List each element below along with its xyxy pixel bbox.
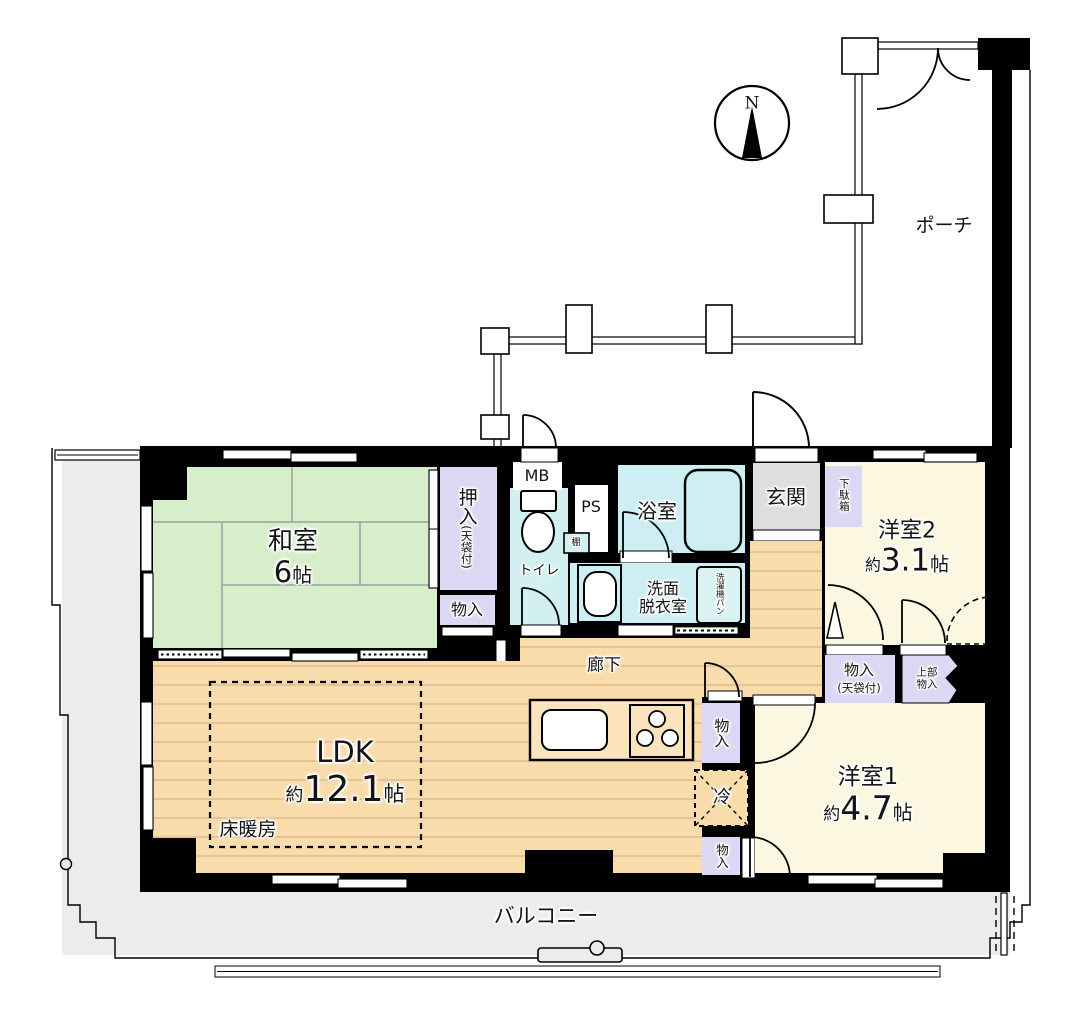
porch-wall: [978, 38, 1030, 70]
ldk-floor: [153, 661, 702, 873]
yoshitsu2-label: 洋室2: [878, 520, 936, 545]
balcony-label: バルコニー: [494, 905, 599, 929]
mb-door-opening: [521, 448, 558, 462]
yoshitsu1-side-opening: [742, 838, 755, 878]
oshiire-label: 押入(天袋付): [455, 487, 476, 568]
washroom-line1: 洗面: [647, 579, 679, 598]
rouka-label: 廊下: [587, 656, 621, 675]
laundry-line1: 洗濯機: [714, 573, 724, 599]
vanity-bowl: [584, 572, 616, 616]
mb-door: [523, 415, 556, 448]
floorplan-page: N ポーチ バルコニー 和室 6帖 LDK 約12.1帖 床暖房 洋室1 約4.…: [0, 0, 1072, 1024]
porch-door: [877, 48, 938, 109]
meter-box-label: MB: [525, 467, 550, 485]
washitsu-size: 6帖: [274, 556, 312, 588]
monoire-hall-text: 物入: [844, 661, 874, 679]
compass-north-label: N: [745, 94, 760, 113]
balcony-hatch: [538, 948, 622, 962]
ldk-approx: 約: [285, 785, 303, 806]
bath-door-opening: [620, 551, 672, 563]
toilet-door-opening: [521, 625, 561, 636]
pipe-space-label: PS: [581, 498, 601, 516]
monoire-door-opening: [442, 627, 493, 636]
fence-post: [481, 328, 509, 354]
yoshitsu2-size-num: 3.1: [881, 543, 930, 579]
laundry-pan-label: 洗濯機パン: [714, 573, 725, 616]
genkan-label: 玄関: [766, 486, 806, 508]
yoshitsu1-size-num: 4.7: [840, 789, 892, 828]
balcony-partition: [1001, 893, 1007, 955]
upper-storage-label: 上部物入: [917, 667, 938, 691]
washitsu-label: 和室: [268, 527, 318, 555]
toilet-tank: [521, 491, 556, 511]
yoshitsu1-approx: 約: [823, 805, 840, 825]
washitsu-size-num: 6: [274, 555, 292, 589]
bathroom-label: 浴室: [637, 500, 677, 522]
upper-storage-line2: 物入: [917, 678, 938, 690]
ldk-label: LDK: [316, 736, 374, 768]
getabako-label: 下駄箱: [837, 478, 849, 513]
washroom-door-opening: [618, 625, 673, 636]
floor-heating-label: 床暖房: [219, 819, 276, 840]
washitsu-size-unit: 帖: [292, 563, 312, 587]
floorplan-graphic: [0, 0, 1072, 1024]
yoshitsu2-opening-left: [826, 645, 883, 655]
monoire-hall-label: 物入(天袋付): [837, 662, 880, 696]
yoshitsu2-size-unit: 帖: [930, 554, 949, 576]
toilet-bowl: [522, 512, 554, 552]
yoshitsu2-approx: 約: [865, 556, 881, 575]
monoire-kitchen-upper-label: 物入: [713, 718, 730, 748]
toilet-label: トイレ: [519, 563, 560, 578]
monoire-kitchen-lower-label: 物入: [714, 844, 728, 869]
oshiire-text: 押入: [456, 487, 478, 525]
kitchen-sink: [542, 710, 607, 750]
washroom-line2: 脱衣室: [639, 597, 687, 616]
yoshitsu1-size-unit: 帖: [893, 801, 913, 825]
yoshitsu1-label: 洋室1: [838, 765, 899, 791]
ldk-size-unit: 帖: [384, 782, 405, 806]
balcony-drain: [61, 859, 72, 870]
oshiire-note: (天袋付): [460, 525, 474, 568]
entrance-door: [753, 392, 809, 448]
yoshitsu2-opening-mid: [900, 645, 946, 655]
porch-label: ポーチ: [915, 215, 972, 236]
laundry-line2: パン: [714, 598, 724, 615]
monoire-hall-note: (天袋付): [837, 681, 880, 695]
fridge-label: 冷: [713, 788, 731, 808]
shelf-label: 棚: [571, 538, 580, 548]
monoire-upper-opening: [708, 691, 742, 701]
genkan-step: [753, 530, 820, 541]
entrance-opening: [755, 448, 818, 462]
yoshitsu1-size: 約4.7帖: [823, 791, 912, 828]
yoshitsu1-door-opening: [753, 695, 815, 705]
upper-storage-line1: 上部: [917, 666, 938, 678]
monoire-washitsu-label: 物入: [451, 601, 483, 619]
yoshitsu2-size: 約3.1帖: [865, 544, 949, 579]
washroom-label: 洗面脱衣室: [639, 580, 687, 616]
ldk-size-num: 12.1: [303, 769, 383, 810]
ldk-size: 約12.1帖: [285, 770, 404, 810]
